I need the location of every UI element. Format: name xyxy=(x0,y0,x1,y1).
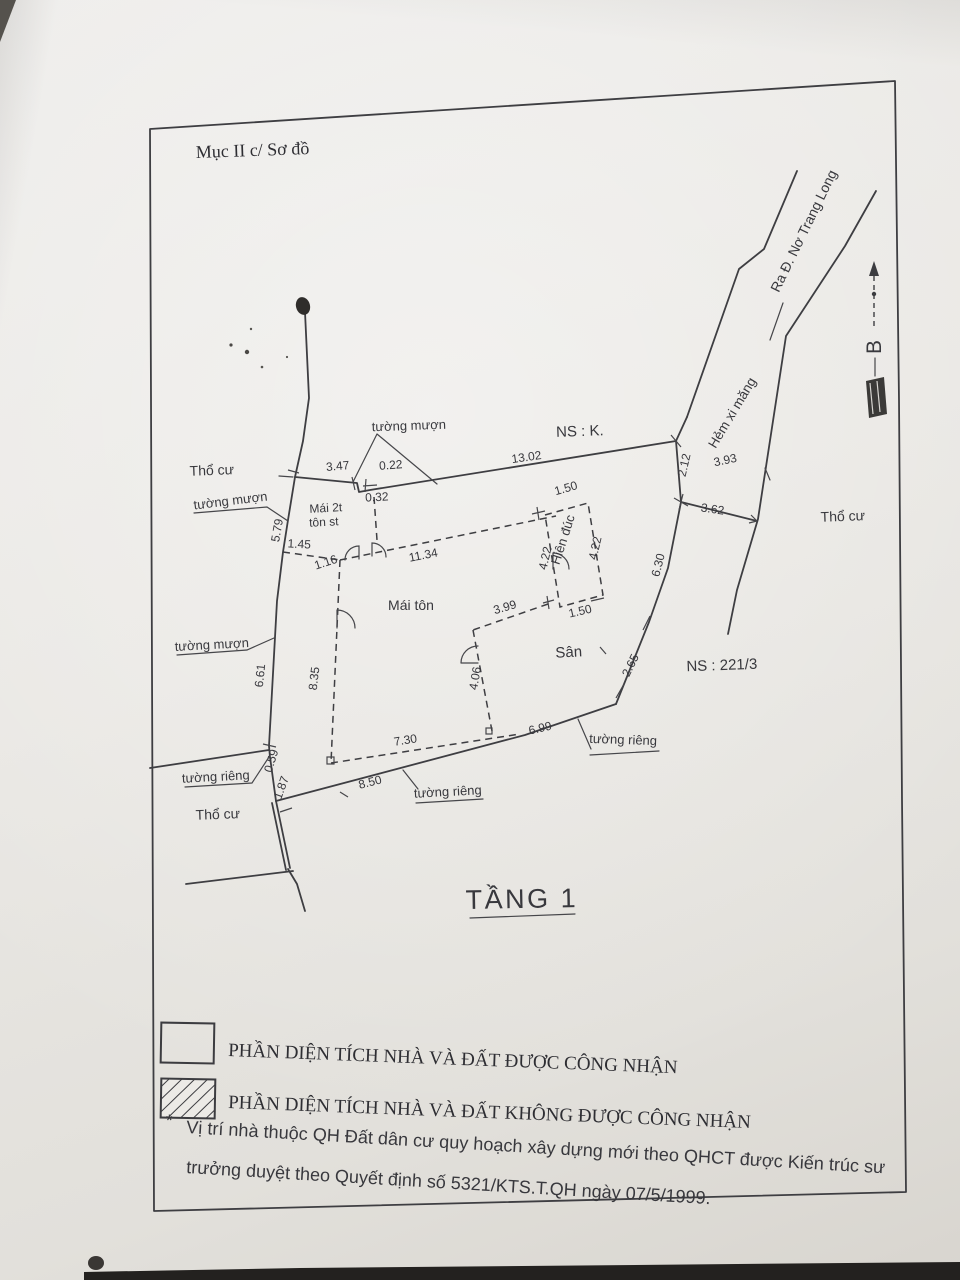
dim-4-06: 4.06 xyxy=(466,665,484,691)
legend-swatch-recognized xyxy=(161,1023,215,1064)
wall-borrowed-top-label: tường mượn xyxy=(372,417,447,435)
dim-3-62: 3.62 xyxy=(700,500,725,517)
dim-5-79: 5.79 xyxy=(268,517,286,543)
door-west-wall xyxy=(337,610,355,628)
north-arrow-head xyxy=(869,261,879,276)
road-name-label: Ra Đ. Nơ Trang Long xyxy=(767,167,840,294)
roof-main-label: Mái tôn xyxy=(388,597,434,613)
dim-1-50-top: 1.50 xyxy=(553,478,580,498)
north-arrow-dot xyxy=(872,292,876,296)
dim-6-61: 6.61 xyxy=(252,663,268,688)
plot-boundaries xyxy=(150,312,757,911)
ticks-misc xyxy=(600,616,650,698)
dim-2-65: 2.65 xyxy=(619,651,642,678)
dim-8-50: 8.50 xyxy=(357,772,383,791)
ink-speck-1 xyxy=(245,350,249,354)
land-top-left-label: Thổ cư xyxy=(189,461,234,479)
dim-3-93: 3.93 xyxy=(712,451,738,470)
land-bottom-left-label: Thổ cư xyxy=(195,805,240,823)
ink-speck-4 xyxy=(286,356,288,358)
scanned-document-page: Mục II c/ Sơ đồ B Ra Đ. Nơ Trang Long Hẻ… xyxy=(0,0,960,1280)
wall-private-left-label: tường riêng xyxy=(182,767,251,786)
ink-blob xyxy=(294,295,312,316)
alley-name-label: Hẻm xi măng xyxy=(705,375,759,451)
boundary-left xyxy=(269,312,309,801)
wall-private-right-label: tường riêng xyxy=(589,731,657,748)
corner-shadow-top-left xyxy=(0,0,16,42)
land-right-label: Thổ cư xyxy=(820,507,865,525)
road-centerline-dash xyxy=(770,303,783,340)
house-edge-835 xyxy=(331,560,340,763)
boundary-top xyxy=(295,441,676,492)
footnote: * Vị trí nhà thuộc QH Đất dân cư quy hoạ… xyxy=(166,1111,886,1208)
yard-label: Sân xyxy=(555,643,583,661)
door-yard-wall xyxy=(461,646,478,663)
wall-borrowed-left-upper-label: tường mượn xyxy=(193,489,268,513)
dim-6-99: 6.99 xyxy=(527,719,553,738)
boundary-top-tick xyxy=(279,476,293,477)
boundary-left-wall xyxy=(272,801,305,911)
house-edge-730 xyxy=(331,734,520,763)
scan-edge-bottom xyxy=(84,1262,960,1280)
north-label: B xyxy=(863,340,886,354)
floor-title-group: TẦNG 1 xyxy=(465,882,578,918)
legend: PHẦN DIỆN TÍCH NHÀ VÀ ĐẤT ĐƯỢC CÔNG NHẬN… xyxy=(161,1023,752,1134)
ink-speck-2 xyxy=(229,343,232,346)
dim-3-47: 3.47 xyxy=(325,458,350,474)
dim-3-99: 3.99 xyxy=(492,597,519,617)
dim-0-22: 0.22 xyxy=(379,457,404,473)
dim-7-30: 7.30 xyxy=(393,731,419,749)
boundary-left-branch xyxy=(150,750,269,768)
door-symbols xyxy=(337,543,569,663)
ink-speck-3 xyxy=(261,366,264,369)
dim-1-45: 1.45 xyxy=(287,536,311,551)
footnote-marker: * xyxy=(166,1111,173,1130)
floor-title: TẦNG 1 xyxy=(465,882,578,915)
scan-blob-bottom-left xyxy=(88,1256,104,1270)
dim-4-22-right: 4.22 xyxy=(586,535,605,561)
road-right-edge xyxy=(728,191,876,634)
dim-1-16: 1.16 xyxy=(312,552,339,573)
parcel-ns-k-label: NS : K. xyxy=(556,422,604,441)
north-arrow: B xyxy=(863,261,887,418)
section-title: Mục II c/ Sơ đồ xyxy=(195,138,309,162)
boundary-step xyxy=(186,871,293,884)
dim-0-32: 0.32 xyxy=(365,489,389,504)
parcel-ns-221-label: NS : 221/3 xyxy=(686,656,757,675)
porch-label: Hiên đúc xyxy=(548,512,578,566)
road-lines xyxy=(687,171,876,634)
dim-11-34: 11.34 xyxy=(408,545,440,564)
footnote-line2: trưởng duyệt theo Quyết định số 5321/KTS… xyxy=(186,1157,711,1208)
north-flag xyxy=(866,377,887,418)
dim-8-35: 8.35 xyxy=(306,666,323,691)
wall-private-bottom-label: tường riêng xyxy=(414,782,483,801)
ink-speck-5 xyxy=(250,328,252,330)
double-door-right-leaf xyxy=(372,543,386,557)
site-plan-drawing: Mục II c/ Sơ đồ B Ra Đ. Nơ Trang Long Hẻ… xyxy=(0,0,960,1280)
roof-small-label-line2: tôn st xyxy=(309,514,340,530)
legend-label-recognized: PHẦN DIỆN TÍCH NHÀ VÀ ĐẤT ĐƯỢC CÔNG NHẬN xyxy=(228,1039,678,1078)
